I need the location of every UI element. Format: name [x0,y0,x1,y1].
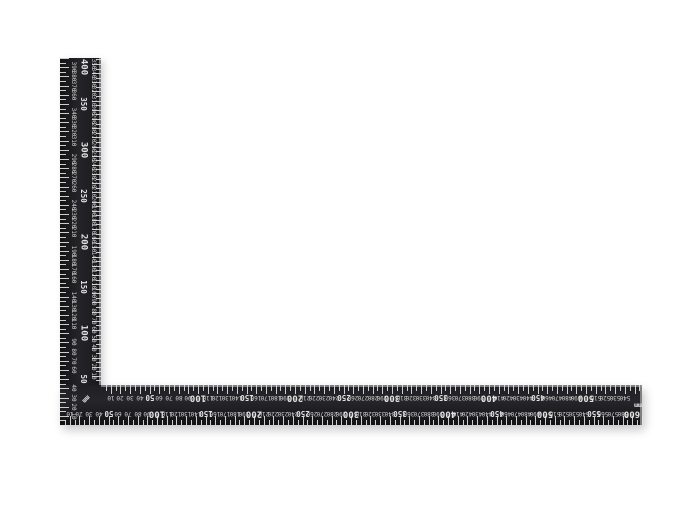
tick-mark [290,385,291,391]
tick-mark [283,416,284,425]
tick-mark [60,375,66,376]
scale-number: 90 [90,299,96,306]
tick-mark [482,420,483,426]
tick-mark [492,420,493,426]
tick-mark [256,385,257,394]
scale-number: 20 [76,410,83,416]
tick-mark [176,416,177,425]
tick-mark [530,420,531,426]
tick-mark [487,416,488,425]
scale-number: 80 [90,308,96,315]
tick-mark [618,420,619,426]
tick-mark [172,420,173,426]
tick-mark [104,420,105,426]
tick-mark [60,398,69,399]
tick-mark [237,385,238,394]
tick-mark [463,420,464,426]
tick-mark [60,306,69,307]
tick-mark [429,416,430,425]
tick-mark [60,255,66,256]
tick-mark [159,385,160,394]
tick-mark [470,385,471,394]
tick-mark [591,385,592,391]
tick-mark [414,420,415,426]
scale-number: 140 [90,251,96,262]
tick-mark [60,310,66,311]
tick-mark [60,352,69,353]
scale-number: 30 [90,354,96,361]
tick-mark [60,81,66,82]
scale-number: 320 [70,126,76,137]
tick-mark [203,385,204,391]
tick-mark [610,385,611,391]
tick-mark [60,122,69,123]
scale-number: 540 [619,394,630,400]
tick-mark [615,385,616,394]
tick-mark [232,385,233,391]
tick-mark [174,385,175,391]
tick-mark [528,385,529,394]
tick-mark [133,420,134,426]
tick-mark [353,385,354,394]
tick-mark [60,173,66,174]
tick-mark [358,385,359,391]
tick-mark [407,385,408,391]
tick-mark [60,104,69,105]
tick-mark [60,200,66,201]
tick-mark [60,370,69,371]
tick-mark [181,420,182,426]
scale-number: 150 [90,242,96,253]
tick-mark [60,297,69,298]
tick-mark [60,388,69,389]
tick-mark [60,205,69,206]
tick-mark [370,416,371,425]
tick-mark [319,385,320,391]
tick-mark [162,420,163,426]
tick-mark [60,274,66,275]
tick-mark [409,416,410,425]
tick-mark [642,416,643,425]
tick-mark [361,416,362,425]
tick-mark [201,420,202,426]
scale-number: 140 [70,291,76,302]
tick-mark [377,385,378,391]
tick-mark [550,420,551,426]
tick-mark [60,90,66,91]
tick-mark [402,385,403,394]
tick-mark [571,385,572,391]
tick-mark [227,385,228,394]
tick-mark [630,385,631,391]
tick-mark [574,416,575,425]
scale-number: 40 [70,385,76,392]
tick-mark [60,338,66,339]
tick-mark [589,420,590,426]
tick-mark [249,420,250,426]
tick-mark [60,113,69,114]
tick-mark [564,416,565,425]
tick-mark [167,416,168,425]
tick-mark [60,177,69,178]
tick-mark [60,159,69,160]
scale-number: 80 [134,410,141,416]
tick-mark [60,320,66,321]
tick-mark [310,385,311,391]
scale-number: 70 [165,394,172,400]
tick-mark [60,402,66,403]
tick-mark [356,420,357,426]
scale-number: 60 [115,410,122,416]
tick-mark [608,420,609,426]
tick-mark [540,420,541,426]
scale-number: 240 [70,199,76,210]
tick-mark [613,416,614,425]
tick-mark [60,99,66,100]
tick-mark [508,385,509,394]
tick-mark [213,385,214,391]
scale-number: 10 [107,394,114,400]
tick-mark [152,420,153,426]
tick-mark [387,385,388,391]
tick-mark [75,420,76,426]
tick-mark [307,420,308,426]
tick-mark [251,385,252,391]
tick-mark [601,385,602,391]
scale-number: 60 [90,326,96,333]
tick-mark [60,127,66,128]
tick-mark [411,385,412,394]
tick-mark [60,86,69,87]
scale-number: 10 [66,410,73,416]
tick-mark [474,385,475,391]
tick-mark [603,416,604,425]
vertical-arm-inner-bevel [99,58,101,385]
tick-mark [433,420,434,426]
tick-mark [472,420,473,426]
scale-number: 60 [156,394,163,400]
tick-mark [70,416,71,425]
tick-mark [113,420,114,426]
tick-mark [511,420,512,426]
scale-number: 380 [70,71,76,82]
tick-mark [79,416,80,425]
tick-mark [317,420,318,426]
tick-mark [598,420,599,426]
tick-mark [620,385,621,391]
tick-mark [184,385,185,391]
tick-mark [60,260,69,261]
corner-unit-label-mm: mm [81,394,91,404]
tick-mark [327,420,328,426]
tick-mark [222,385,223,391]
tick-mark [385,420,386,426]
tick-mark [60,379,69,380]
tick-mark [60,95,69,96]
tick-mark [339,385,340,391]
tick-mark [106,385,107,391]
tick-mark [467,416,468,425]
scale-number: 150 [79,281,87,295]
scale-number: 290 [70,153,76,164]
tick-mark [60,191,66,192]
tick-mark [368,385,369,391]
tick-mark [186,416,187,425]
scale-number: 70 [70,357,76,364]
tick-mark [60,333,69,334]
tick-mark [314,385,315,394]
scale-number: 400 [79,59,88,75]
tick-mark [154,385,155,391]
scale-number: 260 [70,181,76,192]
tick-mark [348,385,349,391]
tick-mark [60,109,66,110]
tick-mark [305,385,306,394]
tick-mark [584,416,585,425]
tick-mark [84,420,85,426]
tick-mark [60,63,66,64]
tick-mark [123,420,124,426]
tick-mark [230,420,231,426]
scale-number: 40 [90,345,96,352]
tick-mark [60,223,69,224]
tick-mark [424,420,425,426]
tick-mark [567,385,568,394]
tick-mark [465,385,466,391]
tick-mark [169,385,170,394]
scale-number: 340 [70,108,76,119]
tick-mark [639,385,640,391]
tick-mark [138,416,139,425]
tick-mark [547,385,548,394]
tick-mark [455,385,456,391]
tick-mark [298,420,299,426]
tick-mark [445,385,446,391]
tick-mark [60,182,66,183]
tick-mark [60,209,66,210]
tick-mark [99,416,100,425]
tick-mark [191,420,192,426]
tick-mark [373,385,374,394]
tick-mark [504,385,505,391]
tick-mark [118,416,119,425]
square-horizontal-arm: mm mm 1020304010203040506070809010011012… [60,385,642,425]
scale-number: 10 [90,372,96,379]
tick-mark [431,385,432,394]
tick-mark [269,420,270,426]
tick-mark [60,228,66,229]
tick-mark [60,145,66,146]
tick-mark [477,416,478,425]
scale-number: 300 [79,142,88,158]
tick-mark [239,420,240,426]
scale-number: 100 [79,325,88,341]
tick-mark [264,416,265,425]
scale-number: 40 [136,394,143,400]
scale-number: 90 [70,339,76,346]
tick-mark [322,416,323,425]
tick-mark [60,425,69,426]
tick-mark [60,411,66,412]
tick-mark [312,416,313,425]
tick-mark [60,150,69,151]
tick-mark [261,385,262,391]
scale-number: 70 [124,410,131,416]
scale-number: 50 [104,409,113,417]
scale-number: 60 [70,366,76,373]
tick-mark [450,385,451,394]
tick-mark [625,385,626,394]
tick-mark [225,416,226,425]
tick-mark [128,416,129,425]
square-vertical-arm: 5060708090100110120130140150160170180190… [60,58,101,385]
tick-mark [60,237,66,238]
scale-number: 70 [90,317,96,324]
tick-mark [60,278,69,279]
scale-number: 80 [175,394,182,400]
scale-number: 350 [90,59,96,70]
tick-mark [60,329,66,330]
tick-mark [60,283,66,284]
tick-mark [60,219,66,220]
tick-mark [60,251,69,252]
tick-mark [346,420,347,426]
tick-mark [560,420,561,426]
scale-number: 50 [79,375,87,384]
tick-mark [60,342,69,343]
scale-number: 260 [90,141,96,152]
tick-mark [324,385,325,394]
scale-number: 80 [70,348,76,355]
scale-number: 310 [70,135,76,146]
tick-mark [421,385,422,394]
scale-number: 40 [95,410,102,416]
tick-mark [60,407,69,408]
tick-mark [637,420,638,426]
tick-mark [443,420,444,426]
tick-mark [60,214,69,215]
tick-mark [518,385,519,394]
tick-mark [555,416,556,425]
tick-mark [380,416,381,425]
tick-mark [135,385,136,391]
tick-mark [60,242,69,243]
tick-mark [552,385,553,391]
tick-mark [416,385,417,391]
tick-mark [280,385,281,391]
tick-mark [259,420,260,426]
scale-number: 320 [90,86,96,97]
tick-mark [215,416,216,425]
scale-number: 310 [90,95,96,106]
scale-number: 50 [90,335,96,342]
tick-mark [458,416,459,425]
tick-mark [60,72,66,73]
tick-mark [569,420,570,426]
tick-mark [196,416,197,425]
scale-number: 600 [624,409,640,418]
tick-mark [242,385,243,391]
tick-mark [60,196,69,197]
tick-mark [60,76,69,77]
tick-mark [89,416,90,425]
tick-mark [542,385,543,391]
scale-number: 30 [126,394,133,400]
tick-mark [111,385,112,394]
tick-mark [60,187,69,188]
tick-mark [60,393,66,394]
scale-number: 50 [145,393,154,401]
tick-mark [96,380,102,381]
tick-mark [334,385,335,394]
tick-mark [94,420,95,426]
tick-mark [65,420,66,426]
unit-label-mm: mm [634,402,642,409]
scale-number: 20 [90,363,96,370]
tick-mark [627,420,628,426]
tick-mark [60,315,69,316]
tick-mark [499,385,500,394]
tick-mark [453,420,454,426]
tick-mark [60,324,69,325]
tick-mark [60,347,66,348]
tick-mark [220,420,221,426]
product-photo-framing-square: 5060708090100110120130140150160170180190… [0,0,680,511]
tick-mark [60,58,69,59]
tick-mark [278,420,279,426]
tick-mark [596,385,597,394]
tick-mark [404,420,405,426]
tick-mark [60,118,66,119]
tick-mark [390,416,391,425]
tick-mark [581,385,582,391]
tick-mark [235,416,236,425]
tick-mark [143,420,144,426]
tick-mark [271,385,272,391]
tick-mark [293,416,294,425]
tick-mark [130,385,131,394]
tick-mark [562,385,563,391]
tick-mark [60,141,69,142]
tick-mark [276,385,277,394]
tick-mark [506,416,507,425]
tick-mark [145,385,146,391]
tick-mark [526,416,527,425]
tick-mark [60,365,66,366]
scale-number: 20 [117,394,124,400]
tick-mark [60,164,66,165]
tick-mark [60,301,66,302]
tick-mark [436,385,437,391]
tick-mark [125,385,126,391]
tick-mark [521,420,522,426]
tick-mark [516,416,517,425]
tick-mark [164,385,165,391]
tick-mark [217,385,218,394]
tick-mark [60,356,66,357]
tick-mark [60,131,69,132]
tick-mark [208,385,209,394]
tick-mark [60,361,69,362]
scale-number: 350 [79,97,87,111]
tick-mark [60,168,69,169]
tick-mark [266,385,267,394]
tick-mark [210,420,211,426]
tick-mark [140,385,141,394]
tick-mark [193,385,194,391]
scale-number: 30 [70,394,76,401]
tick-mark [397,385,398,391]
